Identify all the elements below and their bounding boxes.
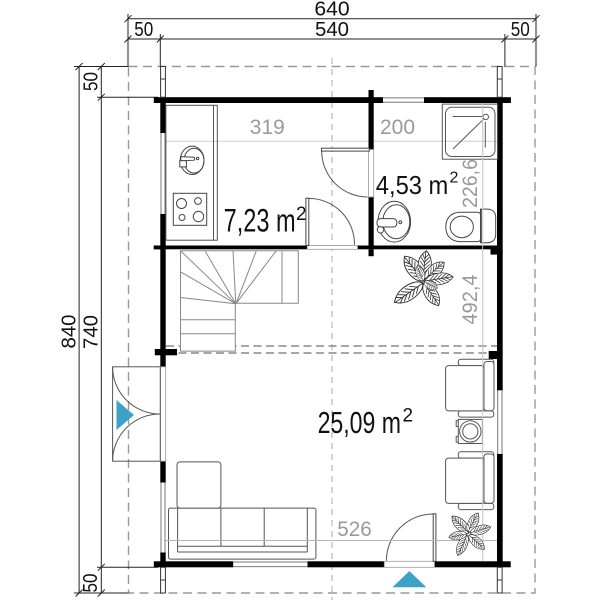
svg-text:50: 50 <box>80 574 102 593</box>
svg-text:226,6: 226,6 <box>459 159 482 208</box>
svg-text:25,09 m: 25,09 m <box>318 405 401 440</box>
svg-text:740: 740 <box>81 315 103 349</box>
svg-text:200: 200 <box>380 116 415 139</box>
svg-text:319: 319 <box>250 116 285 139</box>
svg-text:640: 640 <box>314 0 349 21</box>
svg-text:2: 2 <box>403 406 414 427</box>
svg-text:2: 2 <box>296 204 307 225</box>
svg-text:492,4: 492,4 <box>459 274 482 324</box>
svg-text:4,53 m: 4,53 m <box>376 170 449 200</box>
svg-text:526: 526 <box>337 518 372 541</box>
svg-text:540: 540 <box>315 19 349 41</box>
svg-text:7,23 m: 7,23 m <box>224 202 296 238</box>
svg-text:2: 2 <box>450 170 459 187</box>
svg-text:50: 50 <box>511 19 530 41</box>
svg-text:50: 50 <box>134 19 153 41</box>
svg-text:840: 840 <box>59 315 81 349</box>
svg-text:50: 50 <box>81 72 103 91</box>
